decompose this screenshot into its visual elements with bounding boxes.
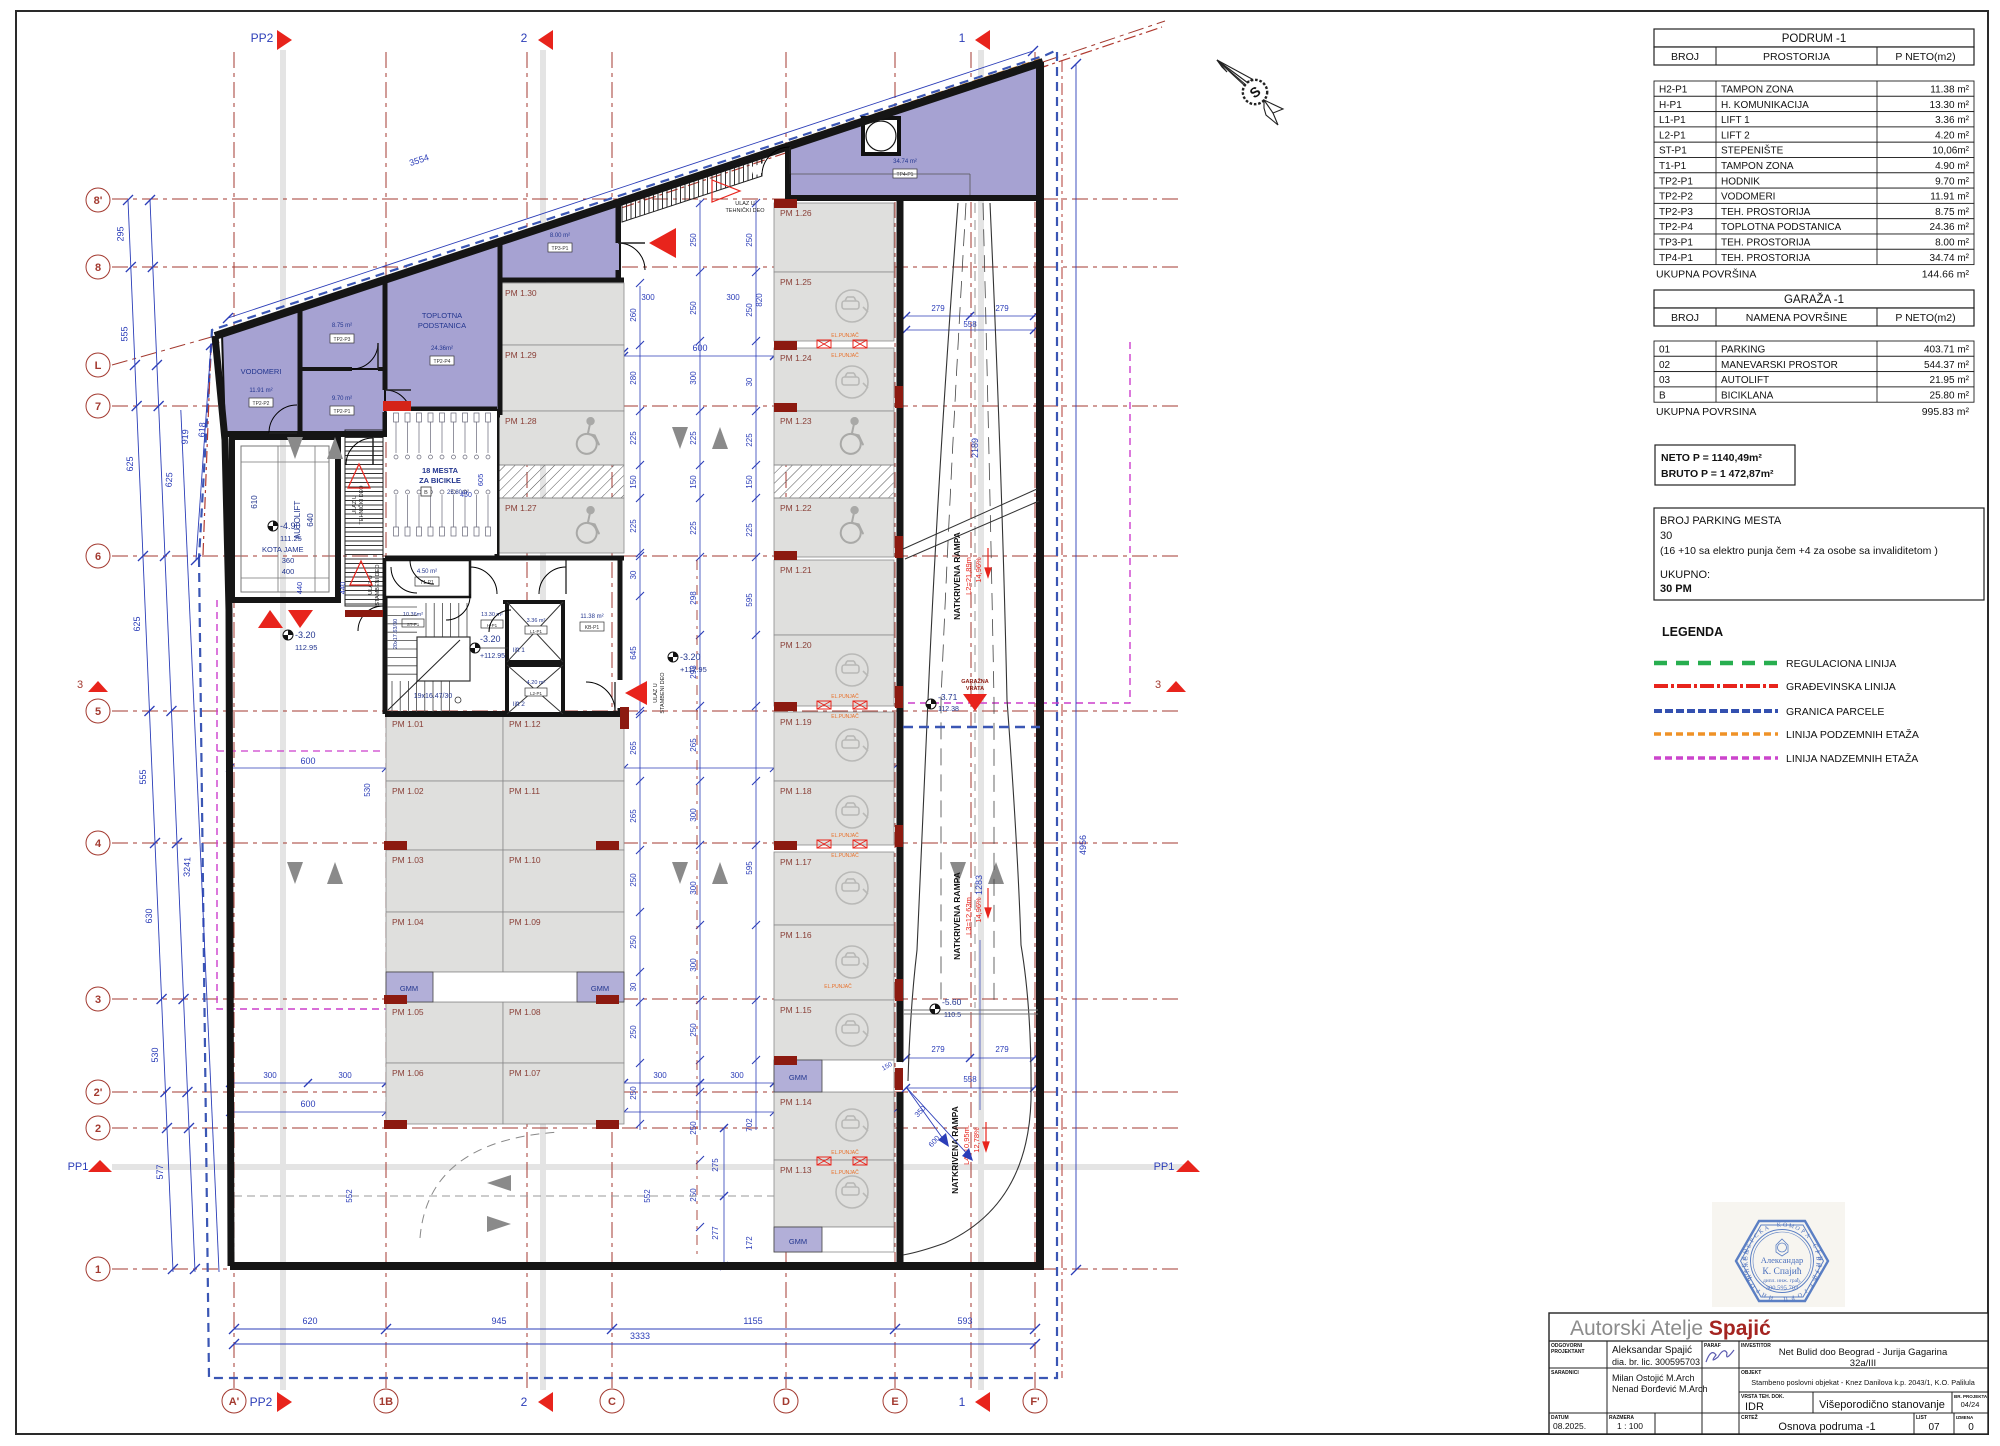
svg-text:TP4-P1: TP4-P1	[1659, 253, 1693, 264]
svg-text:08.2025.: 08.2025.	[1553, 1421, 1586, 1431]
svg-text:PM 1.29: PM 1.29	[505, 350, 537, 360]
svg-text:PM 1.10: PM 1.10	[509, 855, 541, 865]
svg-text:ZA BICIKLE: ZA BICIKLE	[419, 476, 461, 485]
svg-text:32a/III: 32a/III	[1850, 1358, 1876, 1369]
svg-text:PM 1.30: PM 1.30	[505, 288, 537, 298]
svg-text:lift 2: lift 2	[513, 701, 525, 708]
svg-text:REGULACIONA LINIJA: REGULACIONA LINIJA	[1786, 658, 1896, 670]
svg-text:275: 275	[711, 1158, 720, 1172]
svg-text:BROJ PARKING MESTA: BROJ PARKING MESTA	[1660, 515, 1782, 527]
svg-text:1: 1	[959, 31, 966, 45]
svg-text:TP2-P4: TP2-P4	[434, 359, 451, 365]
svg-text:BROJ: BROJ	[1671, 312, 1699, 324]
svg-text:-5.60: -5.60	[942, 997, 962, 1007]
svg-text:403.71 m²: 403.71 m²	[1924, 345, 1970, 356]
svg-text:PM 1.14: PM 1.14	[780, 1097, 812, 1107]
svg-text:995.83 m²: 995.83 m²	[1922, 406, 1970, 418]
svg-text:300: 300	[689, 371, 698, 385]
svg-text:625: 625	[132, 616, 142, 631]
svg-text:OBJEKT: OBJEKT	[1741, 1370, 1761, 1376]
svg-text:PP2: PP2	[251, 31, 274, 45]
svg-text:19x16.47/30: 19x16.47/30	[414, 693, 453, 700]
svg-text:2': 2'	[94, 1087, 103, 1099]
svg-text:EL.PUNJAČ: EL.PUNJAČ	[831, 852, 859, 859]
svg-text:L3=12,63m: L3=12,63m	[964, 897, 973, 935]
svg-text:250: 250	[689, 1023, 698, 1037]
svg-text:225: 225	[745, 523, 754, 537]
svg-text:GARAŽNA: GARAŽNA	[961, 677, 989, 685]
svg-text:440: 440	[338, 582, 347, 595]
svg-text:279: 279	[995, 1045, 1009, 1054]
svg-text:30: 30	[629, 570, 638, 579]
svg-text:600: 600	[692, 343, 707, 353]
svg-text:279: 279	[931, 1045, 945, 1054]
svg-text:PM 1.21: PM 1.21	[780, 565, 812, 575]
svg-text:Autorski Atelje Spajić: Autorski Atelje Spajić	[1570, 1317, 1771, 1340]
svg-text:30: 30	[629, 982, 638, 991]
svg-text:PM 1.11: PM 1.11	[509, 786, 540, 796]
svg-text:TEH. PROSTORIJA: TEH. PROSTORIJA	[1721, 253, 1811, 264]
svg-text:ULAZ U: ULAZ U	[735, 201, 755, 207]
svg-text:EL.PUNJAČ: EL.PUNJAČ	[831, 832, 859, 839]
svg-text:дипл. инж. грађ.: дипл. инж. грађ.	[1763, 1277, 1802, 1284]
svg-text:UKUPNA POVRŠINA: UKUPNA POVRŠINA	[1656, 268, 1756, 281]
svg-text:8.00 m²: 8.00 m²	[550, 233, 570, 239]
svg-text:250: 250	[629, 1025, 638, 1039]
svg-text:LIST: LIST	[1916, 1415, 1927, 1421]
svg-text:250: 250	[745, 233, 754, 247]
svg-text:4956: 4956	[1078, 835, 1088, 855]
svg-text:12,78%: 12,78%	[972, 1127, 981, 1153]
svg-text:Nenad Đorđević M.Arch: Nenad Đorđević M.Arch	[1612, 1384, 1708, 1394]
svg-text:11.38 m²: 11.38 m²	[580, 614, 603, 620]
svg-text:L1-P1: L1-P1	[530, 629, 543, 634]
svg-text:H2-P1: H2-P1	[1659, 85, 1688, 96]
svg-text:1155: 1155	[743, 1316, 762, 1326]
svg-text:618: 618	[196, 422, 207, 438]
svg-text:552: 552	[345, 1189, 354, 1203]
svg-text:BICIKLANA: BICIKLANA	[1721, 390, 1774, 401]
svg-text:ULAZ U: ULAZ U	[352, 495, 358, 515]
svg-text:260: 260	[629, 308, 638, 322]
svg-text:TOPLOTNA: TOPLOTNA	[422, 311, 462, 320]
svg-text:EL.PUNJAČ: EL.PUNJAČ	[831, 352, 859, 359]
svg-text:PM 1.07: PM 1.07	[509, 1068, 541, 1078]
svg-text:8.75 m²: 8.75 m²	[332, 323, 352, 329]
svg-text:02: 02	[1659, 360, 1671, 371]
svg-text:PP2: PP2	[250, 1395, 273, 1409]
svg-text:GRANICA PARCELE: GRANICA PARCELE	[1786, 706, 1884, 718]
svg-text:5: 5	[95, 706, 101, 718]
svg-text:PM 1.17: PM 1.17	[780, 857, 812, 867]
svg-text:279: 279	[995, 304, 1009, 313]
svg-text:H-P1: H-P1	[1659, 100, 1682, 111]
svg-text:TP2-P4: TP2-P4	[1659, 222, 1693, 233]
svg-text:Aleksandar Spajić: Aleksandar Spajić	[1612, 1345, 1692, 1356]
svg-text:TEH. PROSTORIJA: TEH. PROSTORIJA	[1721, 238, 1811, 249]
svg-text:605: 605	[476, 474, 485, 487]
svg-text:24.36m²: 24.36m²	[431, 346, 453, 352]
svg-text:IZMENA: IZMENA	[1956, 1415, 1974, 1420]
svg-text:25.80 m²: 25.80 m²	[1930, 390, 1970, 401]
svg-text:TAMPON ZONA: TAMPON ZONA	[1721, 85, 1794, 96]
svg-text:BR. PROJEKTA: BR. PROJEKTA	[1954, 1394, 1988, 1399]
svg-text:L1-P1: L1-P1	[1659, 115, 1686, 126]
svg-text:L: L	[95, 360, 102, 372]
svg-text:EL.PUNJAČ: EL.PUNJAČ	[831, 1169, 859, 1176]
svg-text:8: 8	[95, 262, 101, 274]
svg-text:PM 1.16: PM 1.16	[780, 930, 812, 940]
svg-text:4.20 m²: 4.20 m²	[1935, 130, 1970, 141]
svg-text:4: 4	[95, 838, 102, 850]
svg-text:Višeporodično stanovanje: Višeporodično stanovanje	[1819, 1399, 1945, 1411]
svg-text:2: 2	[521, 1395, 528, 1409]
svg-text:L2-P1: L2-P1	[1659, 130, 1686, 141]
svg-text:SARADNICI: SARADNICI	[1551, 1370, 1579, 1376]
svg-text:360: 360	[282, 556, 295, 565]
svg-text:TP2-P1: TP2-P1	[1659, 176, 1693, 187]
svg-text:300: 300	[653, 1071, 667, 1080]
svg-text:400: 400	[282, 567, 295, 576]
svg-text:PM 1.27: PM 1.27	[505, 503, 537, 513]
svg-text:Osnova podruma -1: Osnova podruma -1	[1778, 1421, 1875, 1433]
svg-text:TP3-P1: TP3-P1	[1659, 238, 1693, 249]
svg-text:3333: 3333	[630, 1331, 650, 1341]
svg-text:265: 265	[629, 809, 638, 823]
svg-text:555: 555	[138, 769, 148, 784]
svg-text:EL.PUNJAČ: EL.PUNJAČ	[831, 1149, 859, 1156]
svg-text:LIFT 2: LIFT 2	[1721, 130, 1750, 141]
svg-text:H. KOMUNIKACIJA: H. KOMUNIKACIJA	[1721, 100, 1809, 111]
svg-text:PM 1.22: PM 1.22	[780, 503, 812, 513]
svg-text:MANEVARSKI PROSTOR: MANEVARSKI PROSTOR	[1721, 360, 1838, 371]
svg-text:11.38 m²: 11.38 m²	[1930, 85, 1969, 96]
svg-text:PM 1.09: PM 1.09	[509, 917, 541, 927]
svg-text:PM 1.02: PM 1.02	[392, 786, 424, 796]
svg-text:3.36 m²: 3.36 m²	[527, 618, 546, 624]
svg-text:21.95 m²: 21.95 m²	[1930, 375, 1970, 386]
svg-text:IDR: IDR	[1745, 1401, 1764, 1413]
svg-text:630: 630	[144, 908, 154, 923]
svg-text:lift 1: lift 1	[513, 647, 525, 654]
svg-text:544.37 m²: 544.37 m²	[1924, 360, 1970, 371]
svg-text:PM 1.12: PM 1.12	[509, 719, 541, 729]
svg-text:PM 1.24: PM 1.24	[780, 353, 812, 363]
svg-text:LEGENDA: LEGENDA	[1662, 625, 1723, 639]
svg-text:PROSTORIJA: PROSTORIJA	[1763, 51, 1830, 63]
svg-text:PM 1.01: PM 1.01	[392, 719, 424, 729]
svg-text:LINIJA NADZEMNIH ETAŽA: LINIJA NADZEMNIH ETAŽA	[1786, 752, 1918, 765]
svg-text:555: 555	[120, 326, 130, 341]
svg-text:7: 7	[95, 401, 101, 413]
svg-text:150: 150	[629, 475, 638, 489]
svg-text:3.36 m²: 3.36 m²	[1935, 115, 1970, 126]
svg-text:PM 1.25: PM 1.25	[780, 277, 812, 287]
svg-text:ST-P1: ST-P1	[407, 622, 420, 627]
svg-text:NATKRIVENA RAMPA: NATKRIVENA RAMPA	[950, 1106, 960, 1194]
svg-text:NATKRIVENA RAMPA: NATKRIVENA RAMPA	[952, 872, 962, 960]
svg-text:8.75 m²: 8.75 m²	[1935, 207, 1970, 218]
svg-text:TAMPON ZONA: TAMPON ZONA	[1721, 161, 1794, 172]
svg-text:VODOMERI: VODOMERI	[241, 367, 282, 376]
svg-text:225: 225	[689, 521, 698, 535]
svg-text:01: 01	[1659, 345, 1671, 356]
svg-text:B: B	[424, 490, 428, 496]
svg-text:GMM: GMM	[789, 1237, 807, 1246]
svg-text:8': 8'	[94, 195, 103, 207]
svg-text:111.25: 111.25	[280, 534, 302, 543]
svg-text:UKUPNA POVRSINA: UKUPNA POVRSINA	[1656, 406, 1756, 418]
svg-text:945: 945	[491, 1316, 506, 1326]
svg-text:2: 2	[95, 1123, 101, 1135]
svg-text:265: 265	[629, 741, 638, 755]
svg-text:610: 610	[250, 495, 259, 509]
svg-text:150: 150	[689, 475, 698, 489]
svg-text:4.90 m²: 4.90 m²	[1935, 161, 1970, 172]
svg-text:07: 07	[1928, 1422, 1940, 1433]
svg-text:6: 6	[95, 551, 101, 563]
svg-text:ULAZ U: ULAZ U	[653, 683, 659, 703]
svg-text:ST-P1: ST-P1	[1659, 146, 1687, 157]
svg-text:GMM: GMM	[591, 984, 609, 993]
svg-text:GRAĐEVINSKA LINIJA: GRAĐEVINSKA LINIJA	[1786, 681, 1896, 693]
svg-text:11.91 m²: 11.91 m²	[249, 388, 272, 394]
svg-text:4.20 m²: 4.20 m²	[527, 680, 546, 686]
svg-text:250: 250	[629, 935, 638, 949]
svg-text:L2=21,89m: L2=21,89m	[964, 557, 973, 595]
svg-text:645: 645	[629, 646, 638, 660]
svg-text:300: 300	[726, 293, 740, 302]
svg-text:250: 250	[629, 873, 638, 887]
svg-text:-3.20: -3.20	[295, 630, 316, 640]
svg-text:PODRUM -1: PODRUM -1	[1782, 33, 1847, 45]
svg-text:VODOMERI: VODOMERI	[1721, 192, 1775, 203]
svg-text:24.36 m²: 24.36 m²	[1930, 222, 1970, 233]
svg-text:20x17.63/30: 20x17.63/30	[393, 619, 399, 649]
svg-text:595: 595	[745, 861, 754, 875]
svg-text:PP1: PP1	[68, 1161, 89, 1173]
svg-text:TP2-P3: TP2-P3	[1659, 207, 1693, 218]
svg-text:702: 702	[745, 1118, 754, 1132]
svg-text:*: *	[1742, 1257, 1746, 1265]
svg-text:*: *	[1818, 1257, 1822, 1265]
svg-text:LIFT 1: LIFT 1	[1721, 115, 1750, 126]
svg-text:0: 0	[1968, 1422, 1974, 1433]
svg-text:EL.PUNJAČ: EL.PUNJAČ	[824, 983, 852, 990]
svg-text:112.38: 112.38	[938, 706, 959, 713]
svg-text:Net Bulid doo Beograd - Jurija: Net Bulid doo Beograd - Jurija Gagarina	[1779, 1347, 1948, 1358]
svg-text:552: 552	[643, 1189, 652, 1203]
svg-text:620: 620	[302, 1316, 317, 1326]
svg-text:03: 03	[1659, 375, 1671, 386]
svg-text:34.74 m²: 34.74 m²	[893, 159, 917, 165]
svg-text:Stambeno poslovni objekat - Kn: Stambeno poslovni objekat - Knez Danilov…	[1751, 1378, 1975, 1387]
svg-text:558: 558	[963, 1075, 977, 1084]
svg-text:300 595 703: 300 595 703	[1766, 1285, 1799, 1292]
svg-text:(16 +10 sa elektro punja čem +: (16 +10 sa elektro punja čem +4 za osobe…	[1660, 545, 1938, 557]
svg-text:300: 300	[338, 1071, 352, 1080]
svg-text:625: 625	[163, 472, 174, 488]
svg-text:T1-P1: T1-P1	[1659, 161, 1687, 172]
svg-text:-3.71: -3.71	[938, 692, 958, 702]
svg-text:250: 250	[745, 303, 754, 317]
svg-text:PM 1.15: PM 1.15	[780, 1005, 812, 1015]
svg-text:9.70 m²: 9.70 m²	[1935, 176, 1970, 187]
svg-text:UKUPNO:: UKUPNO:	[1660, 569, 1710, 581]
svg-text:TP3-P1: TP3-P1	[552, 246, 569, 252]
svg-text:C: C	[608, 1396, 616, 1408]
svg-text:GMM: GMM	[400, 984, 418, 993]
svg-text:110.5: 110.5	[944, 1012, 961, 1019]
svg-text:GMM: GMM	[789, 1073, 807, 1082]
svg-text:P NETO(m2): P NETO(m2)	[1895, 312, 1955, 324]
svg-text:820: 820	[755, 293, 764, 307]
svg-text:AUTOLIFT: AUTOLIFT	[1721, 375, 1769, 386]
svg-text:TP2-P1: TP2-P1	[334, 409, 351, 415]
svg-text:30: 30	[745, 377, 754, 386]
svg-text:3: 3	[77, 679, 83, 691]
svg-text:11.91 m²: 11.91 m²	[1930, 192, 1969, 203]
svg-text:Александар: Александар	[1761, 1255, 1804, 1265]
svg-text:250: 250	[689, 233, 698, 247]
svg-text:PM 1.13: PM 1.13	[780, 1165, 812, 1175]
svg-text:GARAŽA -1: GARAŽA -1	[1784, 293, 1844, 306]
svg-text:300: 300	[730, 1071, 744, 1080]
svg-text:PARKING: PARKING	[1721, 345, 1765, 356]
svg-text:577: 577	[155, 1164, 165, 1179]
svg-text:PM 1.26: PM 1.26	[780, 208, 812, 218]
svg-text:EL.PUNJAČ: EL.PUNJAČ	[831, 693, 859, 700]
svg-text:TP2-P2: TP2-P2	[1659, 192, 1693, 203]
svg-text:E: E	[891, 1396, 898, 1408]
svg-text:919: 919	[180, 429, 191, 445]
svg-text:BRUTO P = 1 472,87m²: BRUTO P = 1 472,87m²	[1661, 468, 1774, 480]
svg-text:TEHNIČKI DEO: TEHNIČKI DEO	[358, 485, 365, 525]
svg-text:EL.PUNJAČ: EL.PUNJAČ	[831, 713, 859, 720]
svg-text:PM 1.06: PM 1.06	[392, 1068, 424, 1078]
svg-text:PARAF: PARAF	[1704, 1343, 1721, 1349]
svg-text:Milan Ostojić M.Arch: Milan Ostojić M.Arch	[1612, 1373, 1695, 1383]
svg-text:225: 225	[689, 431, 698, 445]
svg-text:F': F'	[1030, 1396, 1040, 1408]
svg-text:EL.PUNJAČ: EL.PUNJAČ	[831, 332, 859, 339]
svg-text:10,06m²: 10,06m²	[1932, 146, 1969, 157]
svg-text:3241: 3241	[182, 857, 193, 877]
svg-text:225: 225	[629, 519, 638, 533]
svg-text:30: 30	[1660, 530, 1672, 542]
svg-text:STAMBENI DEO: STAMBENI DEO	[375, 564, 381, 606]
svg-text:PM 1.28: PM 1.28	[505, 416, 537, 426]
svg-text:13.30 m²: 13.30 m²	[1930, 100, 1970, 111]
svg-text:600: 600	[300, 1099, 315, 1109]
svg-text:225: 225	[745, 433, 754, 447]
svg-text:D: D	[782, 1396, 790, 1408]
svg-text:H-P1: H-P1	[487, 623, 498, 628]
svg-text:250: 250	[629, 1086, 638, 1100]
svg-text:LINIJA PODZEMNIH ETAŽA: LINIJA PODZEMNIH ETAŽA	[1786, 728, 1919, 741]
svg-text:VRSTA TEH. DOK.: VRSTA TEH. DOK.	[1741, 1394, 1785, 1400]
svg-text:PM 1.08: PM 1.08	[509, 1007, 541, 1017]
svg-text:L2-P1: L2-P1	[530, 691, 543, 696]
svg-text:PP1: PP1	[1154, 1161, 1175, 1173]
svg-text:3: 3	[95, 994, 101, 1006]
svg-text:530: 530	[150, 1047, 160, 1062]
svg-text:277: 277	[711, 1226, 720, 1240]
svg-text:1: 1	[95, 1264, 101, 1276]
svg-text:STEPENIŠTE: STEPENIŠTE	[1721, 144, 1784, 157]
svg-text:225: 225	[629, 431, 638, 445]
svg-text:PM 1.23: PM 1.23	[780, 416, 812, 426]
svg-text:TP4-P1: TP4-P1	[897, 172, 914, 178]
svg-text:P NETO(m2): P NETO(m2)	[1895, 51, 1955, 63]
svg-text:VRATA: VRATA	[966, 686, 984, 692]
svg-text:-4.90: -4.90	[280, 521, 301, 531]
svg-text:625: 625	[125, 456, 135, 471]
svg-text:KOTA JAME: KOTA JAME	[262, 545, 304, 554]
svg-text:PROJEKTANT: PROJEKTANT	[1551, 1349, 1585, 1355]
svg-text:+112.95: +112.95	[480, 653, 505, 660]
svg-text:1B: 1B	[379, 1396, 393, 1408]
svg-text:530: 530	[363, 783, 372, 797]
svg-text:14,96%: 14,96%	[974, 897, 983, 923]
svg-text:NATKRIVENA RAMPA: NATKRIVENA RAMPA	[952, 532, 962, 620]
svg-text:4.50 m²: 4.50 m²	[417, 569, 437, 575]
svg-text:+112.95: +112.95	[680, 665, 707, 674]
svg-text:18 MESTA: 18 MESTA	[422, 466, 459, 475]
svg-text:640: 640	[306, 513, 315, 527]
svg-text:STAMBENI DEO: STAMBENI DEO	[660, 672, 666, 714]
svg-text:-3.20: -3.20	[480, 634, 501, 644]
svg-text:К. Спајић: К. Спајић	[1762, 1267, 1801, 1277]
svg-text:172: 172	[745, 1236, 754, 1250]
svg-text:440: 440	[295, 582, 304, 595]
svg-text:NAMENA POVRŠINE: NAMENA POVRŠINE	[1746, 311, 1848, 324]
svg-text:600: 600	[300, 756, 315, 766]
svg-text:PM 1.05: PM 1.05	[392, 1007, 424, 1017]
svg-text:1283: 1283	[974, 875, 984, 895]
svg-text:279: 279	[931, 304, 945, 313]
svg-text:144.66 m²: 144.66 m²	[1922, 269, 1970, 281]
svg-text:TP2-P3: TP2-P3	[334, 337, 351, 343]
svg-text:1 : 100: 1 : 100	[1617, 1421, 1643, 1431]
svg-text:04/24: 04/24	[1961, 1400, 1980, 1409]
svg-text:8.00 m²: 8.00 m²	[1935, 238, 1970, 249]
svg-text:BROJ: BROJ	[1671, 51, 1699, 63]
svg-text:593: 593	[957, 1316, 972, 1326]
svg-text:295: 295	[115, 226, 125, 241]
svg-text:NETO P = 1140,49m²: NETO P = 1140,49m²	[1661, 452, 1762, 464]
svg-text:3: 3	[1155, 679, 1161, 691]
svg-text:PM 1.18: PM 1.18	[780, 786, 812, 796]
svg-text:450: 450	[460, 492, 472, 499]
svg-text:150: 150	[745, 475, 754, 489]
svg-text:250: 250	[689, 301, 698, 315]
svg-text:TEHNIČKI DEO: TEHNIČKI DEO	[725, 207, 765, 214]
svg-text:30 PM: 30 PM	[1660, 583, 1692, 595]
svg-text:KB-P1: KB-P1	[585, 625, 600, 631]
svg-text:595: 595	[745, 593, 754, 607]
svg-text:PM 1.19: PM 1.19	[780, 717, 812, 727]
svg-text:14,96%: 14,96%	[974, 557, 983, 583]
svg-text:300: 300	[641, 293, 655, 302]
svg-text:280: 280	[629, 371, 638, 385]
svg-text:TEH. PROSTORIJA: TEH. PROSTORIJA	[1721, 207, 1811, 218]
svg-text:TP2-P2: TP2-P2	[253, 401, 270, 407]
svg-text:TOPLOTNA PODSTANICA: TOPLOTNA PODSTANICA	[1721, 222, 1842, 233]
svg-text:PM 1.04: PM 1.04	[392, 917, 424, 927]
svg-text:A': A'	[229, 1396, 240, 1408]
svg-text:112.95: 112.95	[295, 643, 317, 652]
